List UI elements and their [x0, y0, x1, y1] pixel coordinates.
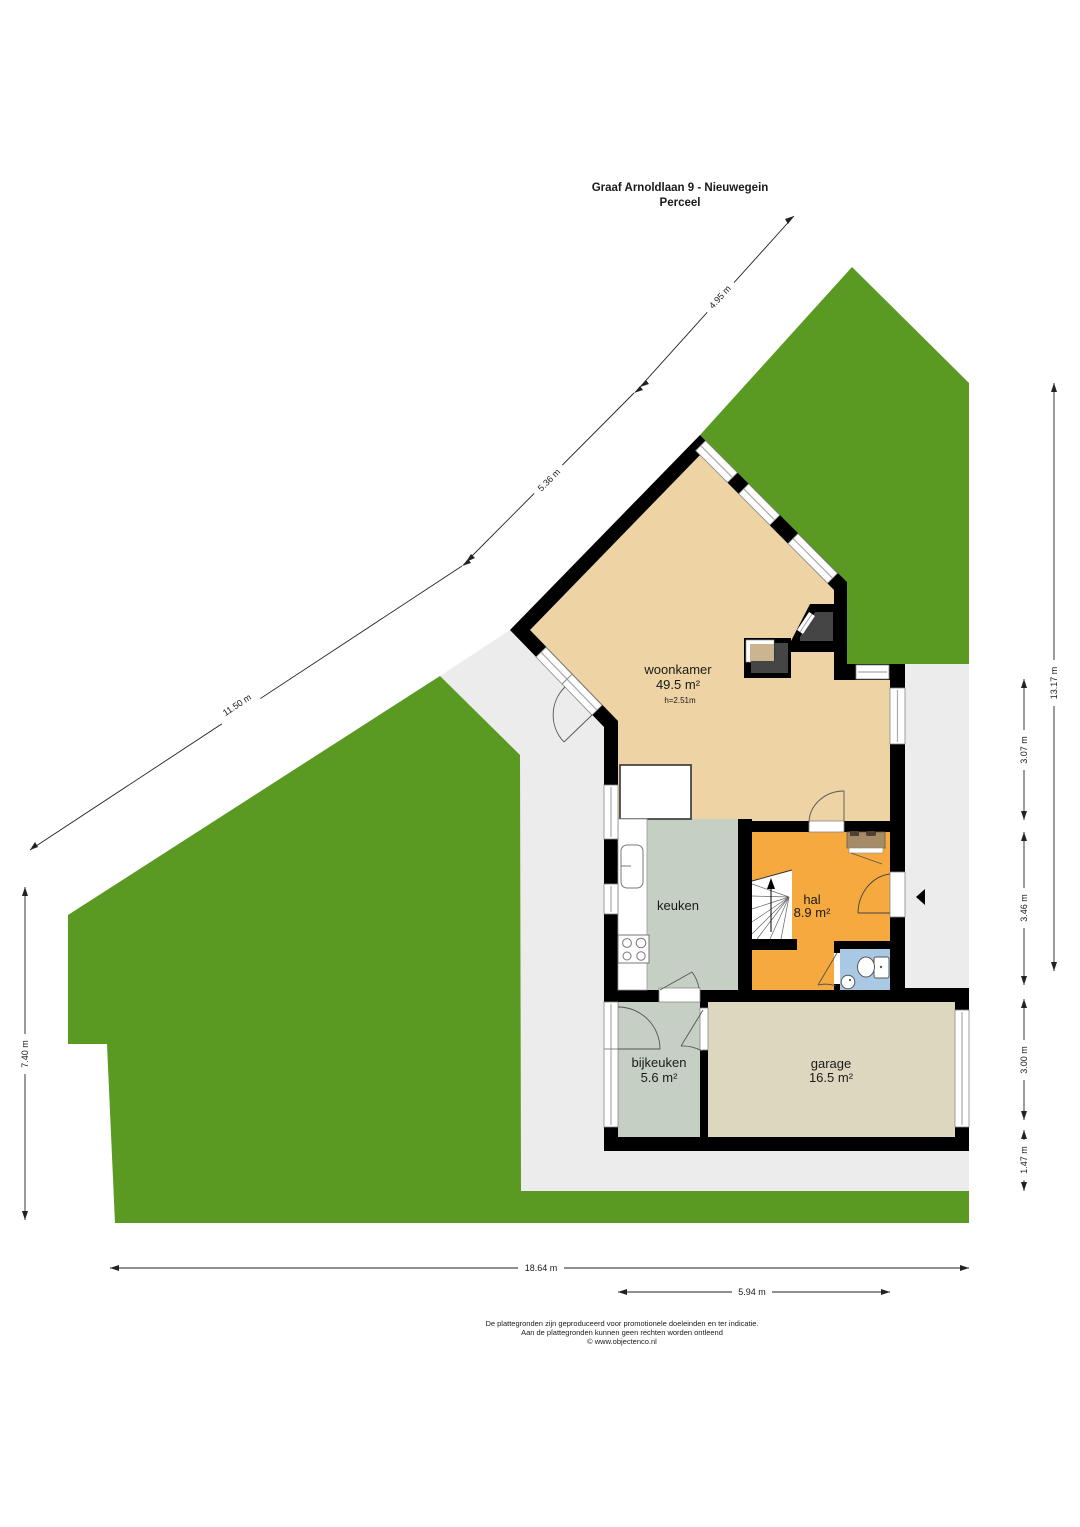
svg-text:garage: garage — [811, 1056, 851, 1071]
svg-text:5.6 m²: 5.6 m² — [641, 1070, 679, 1085]
svg-text:© www.objectenco.nl: © www.objectenco.nl — [587, 1337, 657, 1346]
svg-text:49.5 m²: 49.5 m² — [656, 677, 701, 692]
svg-text:3.46 m: 3.46 m — [1019, 894, 1029, 922]
svg-text:16.5 m²: 16.5 m² — [809, 1070, 854, 1085]
svg-text:Aan de plattegronden kunnen ge: Aan de plattegronden kunnen geen rechten… — [521, 1328, 723, 1337]
svg-text:De plattegronden zijn geproduc: De plattegronden zijn geproduceerd voor … — [485, 1319, 758, 1328]
svg-text:3.00 m: 3.00 m — [1019, 1046, 1029, 1074]
svg-text:13.17 m: 13.17 m — [1049, 667, 1059, 700]
svg-text:3.07 m: 3.07 m — [1019, 736, 1029, 764]
svg-text:5.94 m: 5.94 m — [738, 1287, 766, 1297]
svg-text:7.40 m: 7.40 m — [20, 1040, 30, 1068]
svg-text:8.9 m²: 8.9 m² — [794, 905, 832, 920]
svg-text:h=2.51m: h=2.51m — [664, 696, 696, 705]
svg-text:1.47 m: 1.47 m — [1019, 1146, 1029, 1174]
svg-text:keuken: keuken — [657, 898, 699, 913]
svg-text:bijkeuken: bijkeuken — [632, 1055, 687, 1070]
svg-text:18.64 m: 18.64 m — [525, 1263, 558, 1273]
svg-text:Graaf Arnoldlaan 9 - Nieuwegei: Graaf Arnoldlaan 9 - Nieuwegein — [592, 182, 769, 194]
svg-text:woonkamer: woonkamer — [643, 662, 712, 677]
svg-text:Perceel: Perceel — [660, 197, 701, 209]
